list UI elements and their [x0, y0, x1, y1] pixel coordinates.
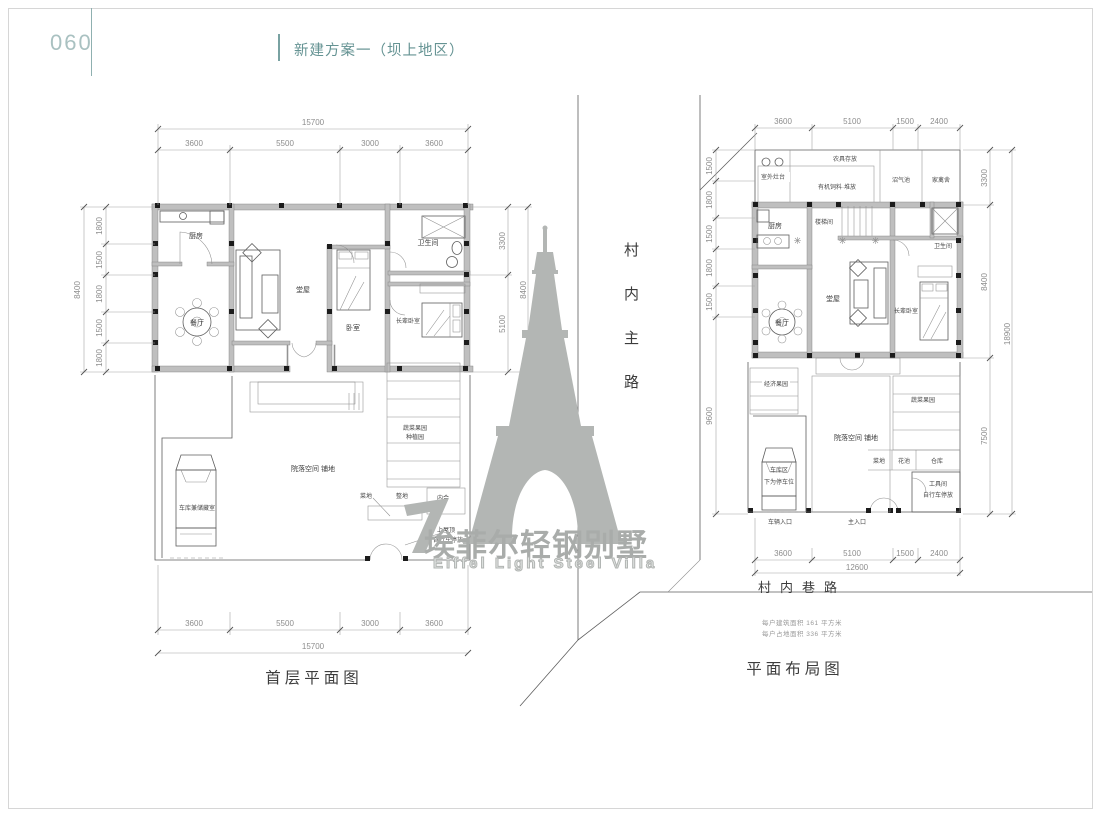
entry-label-main: 主入口 — [848, 518, 866, 526]
right-plan-labels: 室外灶台 农具存放 有机饲料·堆放 沼气池 家禽舍 楼梯间 厨房 餐厅 堂屋 卫… — [761, 155, 953, 526]
brand-name-en: Eiffel Light Steel Villa — [433, 555, 657, 572]
svg-text:1500: 1500 — [896, 117, 914, 126]
svg-text:1500: 1500 — [705, 225, 714, 243]
room-label-compost: 有机饲料·堆放 — [818, 183, 856, 191]
svg-text:3600: 3600 — [774, 117, 792, 126]
room-label-elder2: 长辈卧室 — [894, 307, 918, 315]
area-note-1: 每户建筑面积 161 平方米 — [762, 617, 842, 627]
drawing-canvas: 厨房 餐厅 堂屋 卧室 卫生间 长辈卧室 车库兼储藏室 院落空间 铺地 蔬菜果园… — [0, 0, 1101, 817]
svg-text:1800: 1800 — [95, 349, 104, 367]
left-plan-labels: 厨房 餐厅 堂屋 卧室 卫生间 长辈卧室 车库兼储藏室 院落空间 铺地 蔬菜果园… — [179, 231, 463, 544]
svg-text:8400: 8400 — [73, 281, 82, 299]
right-plan-furniture — [757, 206, 958, 370]
site-label-orchard-left: 经济果园 — [764, 380, 788, 388]
svg-text:5500: 5500 — [276, 619, 294, 628]
site-label-plot-b: 整地 — [396, 492, 408, 500]
room-label-kitchen: 厨房 — [189, 231, 203, 240]
svg-text:3300: 3300 — [498, 232, 507, 250]
svg-text:18900: 18900 — [1003, 322, 1012, 345]
room-label-stove: 室外灶台 — [761, 173, 785, 181]
site-label-toolroom2: 自行车停放 — [923, 491, 953, 499]
svg-text:5100: 5100 — [843, 549, 861, 558]
svg-text:12600: 12600 — [846, 563, 869, 572]
svg-text:8400: 8400 — [980, 273, 989, 291]
site-label-orchard2: 种植园 — [406, 433, 424, 441]
entry-label-car: 车辆入口 — [768, 518, 792, 526]
main-road-label: 村内主路 — [620, 242, 641, 418]
room-label-hall2: 堂屋 — [826, 294, 840, 303]
svg-text:3000: 3000 — [361, 619, 379, 628]
svg-text:1500: 1500 — [705, 293, 714, 311]
left-plan-caption: 首层平面图 — [246, 666, 382, 688]
room-label-dining2: 餐厅 — [775, 318, 789, 327]
svg-text:1800: 1800 — [95, 285, 104, 303]
site-label-plot-c2: 仓库 — [931, 457, 943, 465]
svg-text:3600: 3600 — [774, 549, 792, 558]
svg-text:15700: 15700 — [302, 642, 325, 651]
room-label-stair: 楼梯间 — [815, 218, 833, 226]
right-floor-plan: 室外灶台 农具存放 有机饲料·堆放 沼气池 家禽舍 楼梯间 厨房 餐厅 堂屋 卫… — [705, 117, 1016, 576]
road-network — [520, 95, 1092, 706]
site-label-toolroom1: 工具间 — [929, 480, 947, 488]
svg-text:5100: 5100 — [498, 315, 507, 333]
site-label-plot-a2: 菜地 — [873, 457, 885, 465]
svg-text:7500: 7500 — [980, 427, 989, 445]
site-label-plot-a: 菜地 — [360, 492, 372, 500]
svg-text:1800: 1800 — [95, 217, 104, 235]
svg-text:5100: 5100 — [843, 117, 861, 126]
svg-text:15700: 15700 — [302, 118, 325, 127]
left-plan-walls — [152, 204, 473, 372]
site-label-courtyard: 院落空间 铺地 — [291, 464, 335, 473]
lane-label: 村内巷路 — [740, 577, 864, 596]
room-label-dining: 餐厅 — [190, 318, 204, 327]
site-label-plot-b2: 花池 — [898, 457, 910, 465]
area-note-2: 每户占地面积 336 平方米 — [762, 628, 842, 638]
svg-text:1800: 1800 — [705, 259, 714, 277]
left-plan-dimensions: 15700 3600 5500 3000 3600 1800 1500 1800… — [73, 118, 532, 656]
room-label-hall: 堂屋 — [296, 285, 310, 294]
site-label-orchard-right: 蔬菜果园 — [911, 396, 935, 404]
room-label-kitchen2: 厨房 — [768, 221, 782, 230]
svg-text:1500: 1500 — [705, 157, 714, 175]
room-label-poultry: 家禽舍 — [932, 176, 950, 184]
svg-text:1500: 1500 — [896, 549, 914, 558]
right-plan-shed-row — [755, 150, 960, 205]
svg-text:3300: 3300 — [980, 169, 989, 187]
left-floor-plan: 厨房 餐厅 堂屋 卧室 卫生间 长辈卧室 车库兼储藏室 院落空间 铺地 蔬菜果园… — [73, 118, 532, 656]
svg-text:2400: 2400 — [930, 117, 948, 126]
svg-text:5500: 5500 — [276, 139, 294, 148]
svg-text:1500: 1500 — [95, 319, 104, 337]
right-plan-caption: 平面布局图 — [736, 657, 854, 679]
room-label-bedroom: 卧室 — [346, 323, 360, 332]
svg-text:2400: 2400 — [930, 549, 948, 558]
svg-text:3600: 3600 — [425, 139, 443, 148]
svg-text:1800: 1800 — [705, 191, 714, 209]
svg-text:3600: 3600 — [425, 619, 443, 628]
room-label-bath2: 卫生间 — [934, 242, 952, 250]
site-label-carport2: 下为停车位 — [764, 478, 794, 486]
room-label-biogas: 沼气池 — [892, 176, 910, 184]
svg-text:3600: 3600 — [185, 619, 203, 628]
site-label-courtyard2: 院落空间 铺地 — [834, 433, 878, 442]
site-label-carport1: 车库区 — [770, 466, 788, 474]
svg-text:9600: 9600 — [705, 407, 714, 425]
svg-text:3000: 3000 — [361, 139, 379, 148]
site-label-garage: 车库兼储藏室 — [179, 504, 215, 512]
site-label-orchard1: 蔬菜果园 — [403, 424, 427, 432]
room-label-bathroom: 卫生间 — [418, 238, 439, 247]
room-label-elder: 长辈卧室 — [396, 317, 420, 325]
svg-text:8400: 8400 — [519, 281, 528, 299]
svg-text:1500: 1500 — [95, 251, 104, 269]
svg-text:3600: 3600 — [185, 139, 203, 148]
room-label-tool-storage: 农具存放 — [833, 155, 857, 163]
